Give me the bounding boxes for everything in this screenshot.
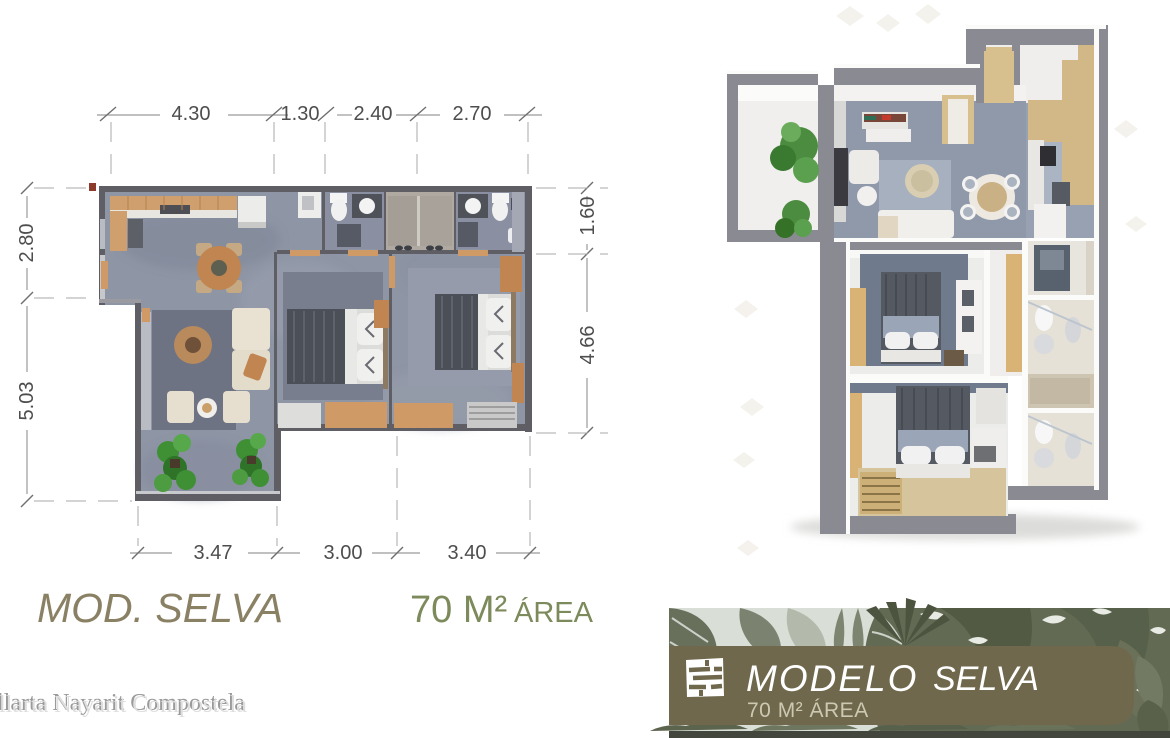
svg-text:70 M²: 70 M² <box>410 589 507 631</box>
svg-text:SELVA: SELVA <box>933 660 1039 698</box>
svg-text:3.47: 3.47 <box>194 542 233 564</box>
svg-text:1.60: 1.60 <box>577 197 599 236</box>
svg-text:5.03: 5.03 <box>16 382 38 421</box>
svg-text:4.30: 4.30 <box>172 103 211 125</box>
svg-text:llarta Nayarit Compostela: llarta Nayarit Compostela <box>0 692 247 718</box>
svg-text:MOD. SELVA: MOD. SELVA <box>37 585 283 631</box>
svg-text:ÁREA: ÁREA <box>514 596 594 629</box>
svg-text:3.00: 3.00 <box>324 542 363 564</box>
svg-text:4.66: 4.66 <box>577 326 599 365</box>
svg-text:2.40: 2.40 <box>354 103 393 125</box>
svg-text:2.70: 2.70 <box>453 103 492 125</box>
svg-text:2.80: 2.80 <box>16 224 38 263</box>
svg-text:1.30: 1.30 <box>281 103 320 125</box>
svg-text:70 M² ÁREA: 70 M² ÁREA <box>747 699 869 722</box>
svg-text:MODELO: MODELO <box>746 658 918 699</box>
svg-text:3.40: 3.40 <box>448 542 487 564</box>
